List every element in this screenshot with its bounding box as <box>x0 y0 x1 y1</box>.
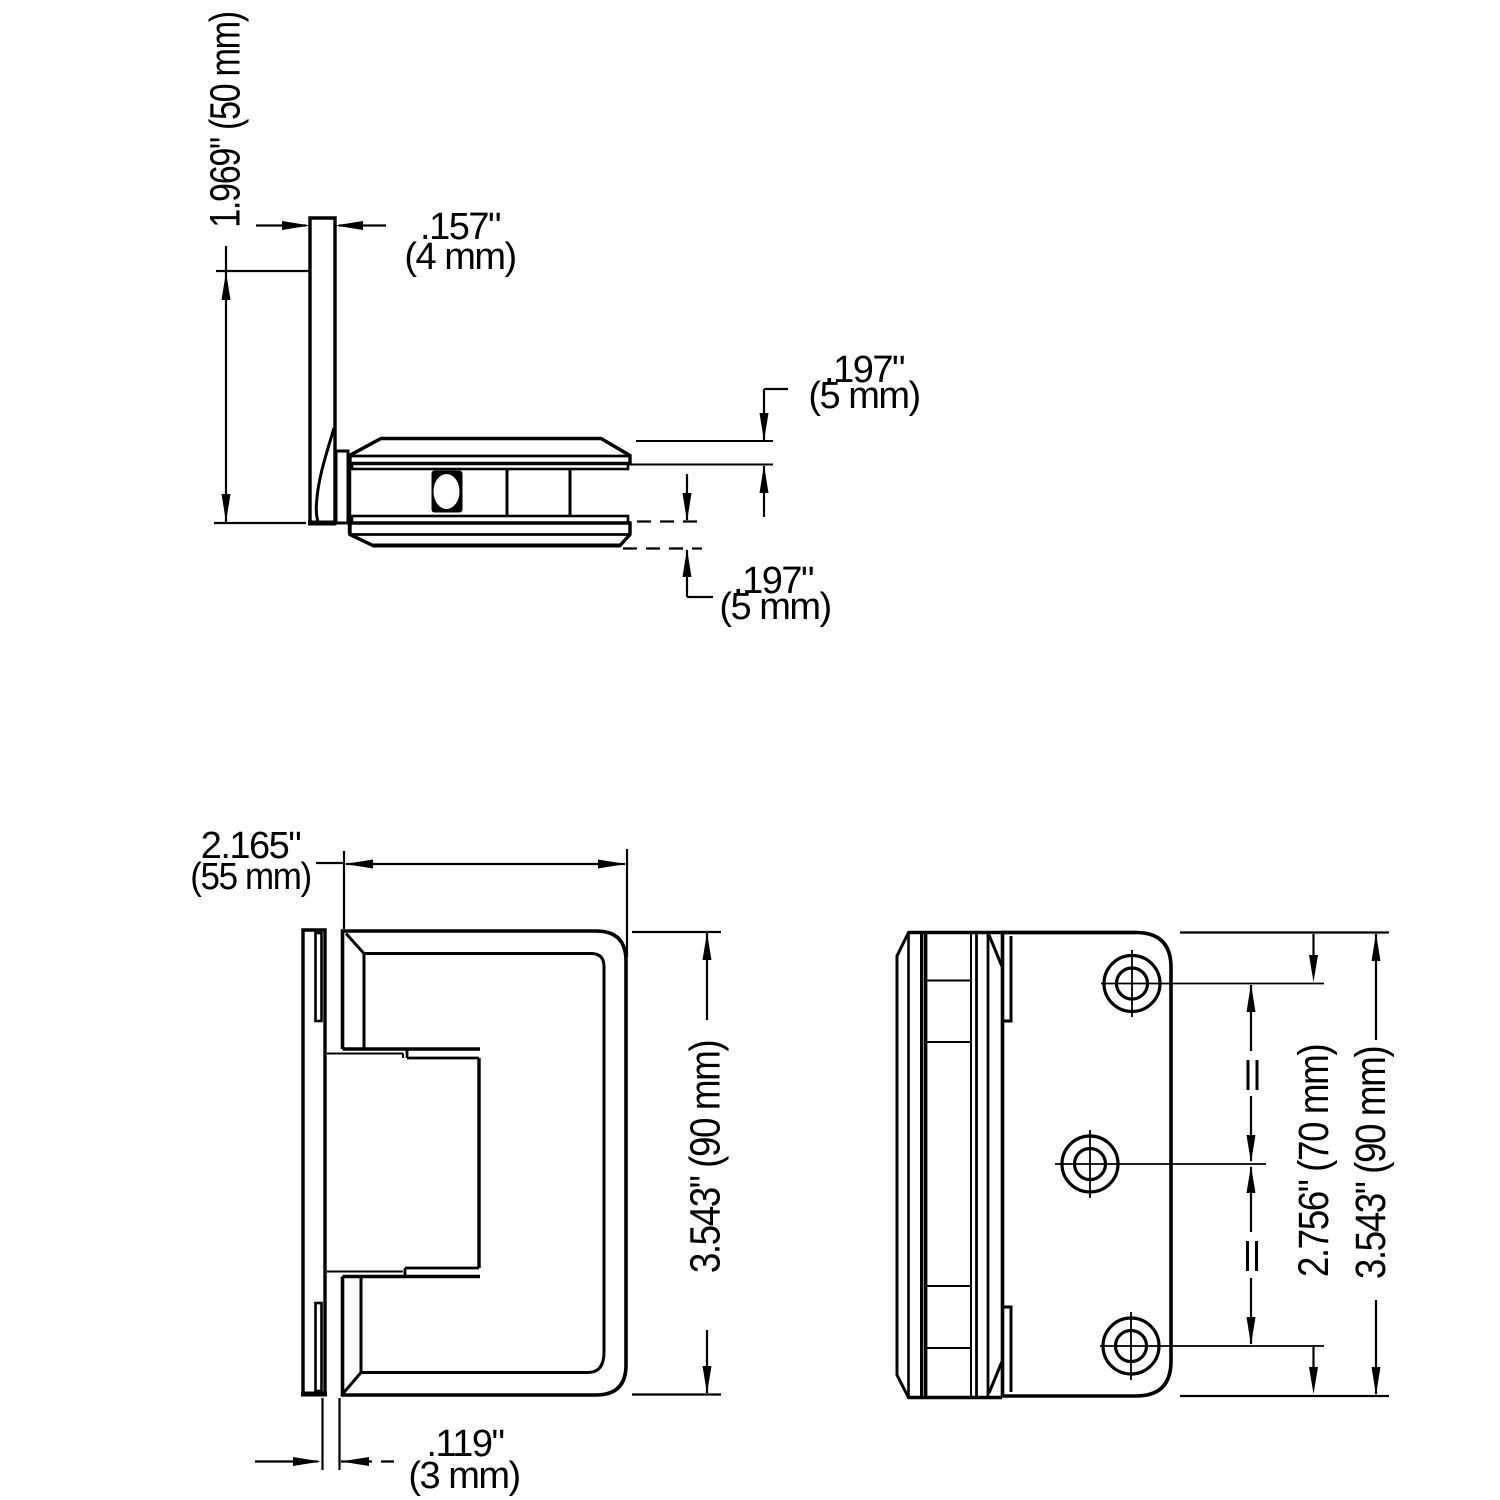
svg-text:(4 mm): (4 mm) <box>404 236 515 278</box>
svg-text:3.543" (90 mm): 3.543" (90 mm) <box>1348 1047 1395 1279</box>
svg-text:(55 mm): (55 mm) <box>190 855 310 898</box>
svg-text:(3 mm): (3 mm) <box>408 1455 519 1497</box>
svg-text:1.969" (50 mm): 1.969" (50 mm) <box>202 12 249 228</box>
svg-text:3.543" (90 mm): 3.543" (90 mm) <box>682 1041 729 1273</box>
svg-text:(5 mm): (5 mm) <box>808 375 919 417</box>
svg-text:2.756" (70 mm): 2.756" (70 mm) <box>1291 1045 1338 1277</box>
svg-text:(5 mm): (5 mm) <box>719 586 830 628</box>
